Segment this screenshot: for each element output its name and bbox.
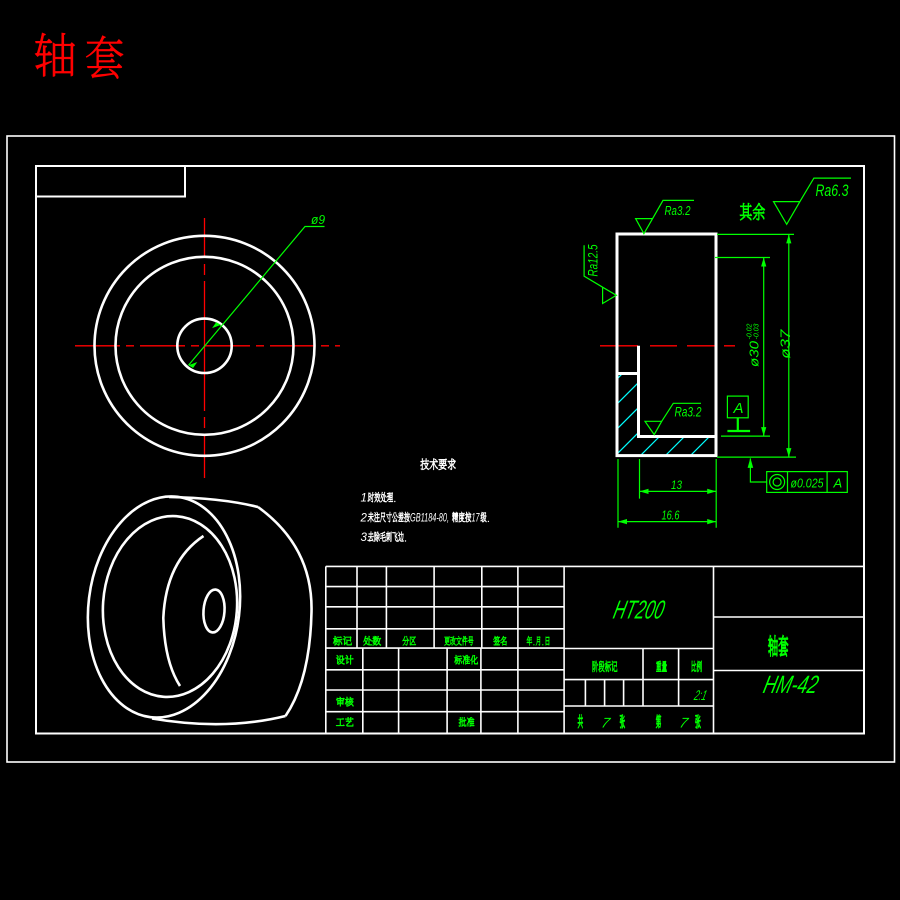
svg-text:-0.03: -0.03 [754,323,761,339]
svg-text:HT200: HT200 [611,595,669,625]
svg-text:GB1184-80,: GB1184-80, [410,513,449,525]
svg-text:-0.02: -0.02 [747,323,754,339]
svg-text:Ra6.3: Ra6.3 [816,182,850,200]
svg-text:ø30: ø30 [748,341,762,367]
svg-text:ø37: ø37 [778,329,793,359]
svg-text:ø0.025: ø0.025 [791,476,825,491]
svg-text:16.6: 16.6 [662,508,681,523]
svg-text:A: A [733,400,744,417]
svg-text:ø9: ø9 [311,212,325,227]
svg-text:HM-42: HM-42 [761,671,822,699]
svg-text:Ra12.5: Ra12.5 [586,244,601,276]
svg-text:13: 13 [671,478,682,492]
svg-text:Ra3.2: Ra3.2 [665,203,692,218]
svg-text:2.: 2. [360,513,371,525]
svg-text:A: A [833,476,843,491]
svg-text:Ra3.2: Ra3.2 [675,405,702,420]
svg-text:17: 17 [472,513,480,525]
